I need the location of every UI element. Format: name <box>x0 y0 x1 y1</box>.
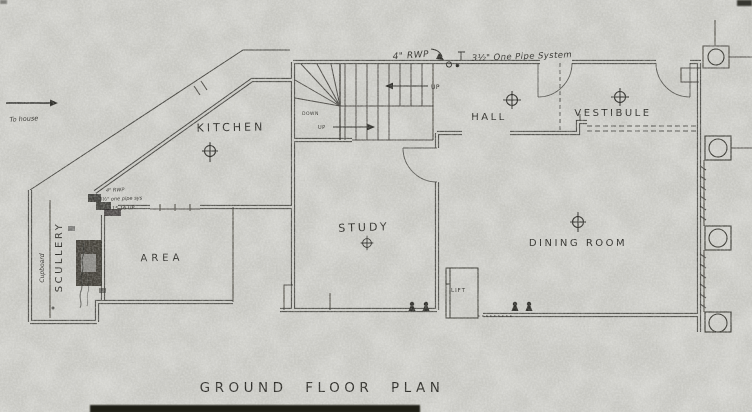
floor-plan-drawing: KITCHEN HALL VESTIBULE STUDY DINING ROOM… <box>0 0 752 412</box>
floor-plan-scan: KITCHEN HALL VESTIBULE STUDY DINING ROOM… <box>0 0 752 412</box>
